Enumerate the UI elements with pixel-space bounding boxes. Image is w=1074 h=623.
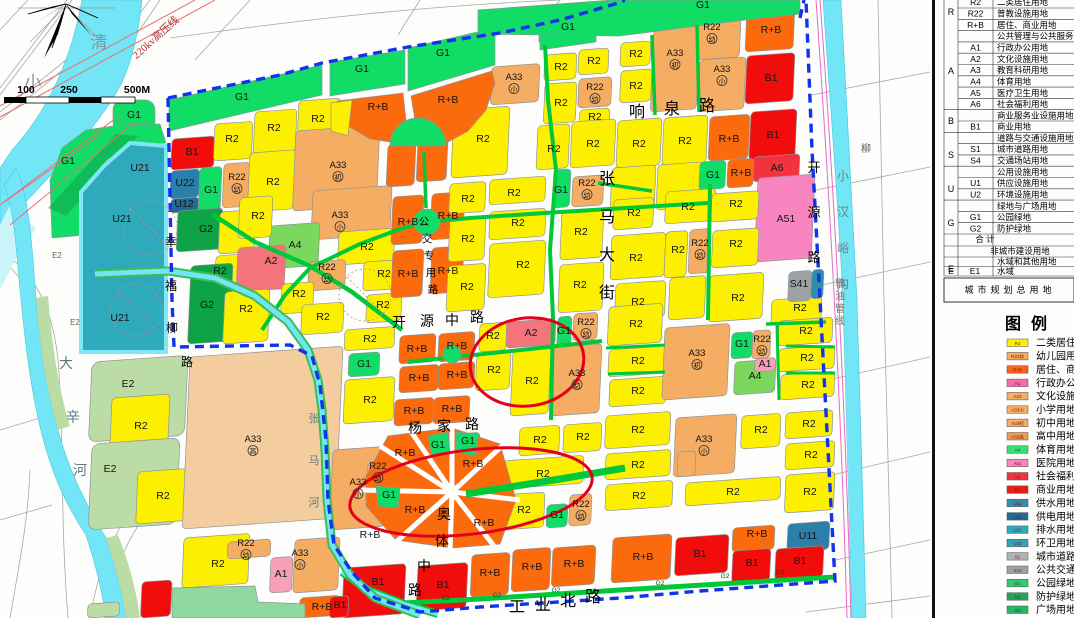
svg-text:工: 工 — [509, 599, 525, 616]
svg-text:公用设施用地: 公用设施用地 — [997, 167, 1049, 177]
svg-text:R2: R2 — [573, 279, 587, 291]
svg-text:初: 初 — [335, 173, 342, 182]
svg-text:R+B: R+B — [438, 94, 459, 106]
svg-text:环卫用地: 环卫用地 — [1036, 537, 1074, 550]
svg-text:R: R — [948, 7, 955, 17]
svg-text:R2: R2 — [671, 244, 685, 256]
svg-text:R2: R2 — [486, 330, 500, 342]
svg-text:A33: A33 — [330, 160, 347, 171]
svg-text:G1: G1 — [561, 21, 575, 33]
svg-text:G1: G1 — [382, 489, 396, 501]
svg-text:柳: 柳 — [166, 321, 178, 335]
svg-text:R+B: R+B — [368, 101, 389, 113]
svg-text:R2: R2 — [213, 265, 227, 277]
svg-text:线: 线 — [835, 315, 845, 328]
svg-text:开: 开 — [392, 316, 406, 331]
svg-text:G2: G2 — [721, 573, 730, 580]
svg-text:R22幼: R22幼 — [1011, 353, 1024, 360]
svg-text:R2: R2 — [631, 424, 645, 436]
svg-text:医院用地: 医院用地 — [1036, 456, 1074, 469]
svg-text:R2: R2 — [316, 311, 330, 323]
svg-text:G2: G2 — [1014, 595, 1021, 600]
svg-text:G1: G1 — [436, 47, 450, 59]
svg-text:输: 输 — [835, 277, 845, 290]
svg-text:R22: R22 — [703, 22, 720, 33]
svg-text:E2: E2 — [104, 463, 117, 475]
svg-text:幼: 幼 — [574, 381, 581, 390]
svg-text:公: 公 — [419, 216, 430, 228]
svg-text:U: U — [948, 184, 955, 194]
svg-text:R+B: R+B — [719, 133, 740, 145]
svg-text:G1: G1 — [431, 439, 445, 451]
svg-text:管: 管 — [835, 302, 845, 315]
svg-text:水域和其他用地: 水域和其他用地 — [997, 257, 1057, 267]
svg-text:小学用地: 小学用地 — [1036, 403, 1074, 416]
svg-text:R2: R2 — [629, 80, 643, 92]
svg-text:医疗卫生用地: 医疗卫生用地 — [997, 88, 1049, 98]
svg-text:E2: E2 — [70, 318, 80, 327]
svg-text:S41: S41 — [790, 278, 809, 290]
svg-text:幼: 幼 — [234, 185, 241, 194]
svg-text:R2: R2 — [588, 111, 602, 123]
svg-text:500M: 500M — [124, 84, 151, 96]
svg-text:R2: R2 — [311, 113, 325, 125]
svg-text:体育用地: 体育用地 — [997, 77, 1032, 87]
svg-text:普教设施用地: 普教设施用地 — [997, 9, 1049, 19]
svg-text:路: 路 — [470, 310, 484, 326]
svg-text:路: 路 — [585, 588, 601, 606]
svg-text:A33初: A33初 — [1011, 420, 1024, 427]
svg-text:A6: A6 — [1015, 474, 1021, 479]
svg-text:G1: G1 — [550, 509, 564, 521]
svg-text:二类居住用地: 二类居住用地 — [997, 0, 1049, 7]
svg-text:R2: R2 — [460, 281, 474, 293]
svg-text:城市规划总用地: 城市规划总用地 — [964, 284, 1055, 295]
svg-text:福: 福 — [165, 278, 177, 293]
svg-text:R2: R2 — [1015, 341, 1021, 346]
svg-text:A33: A33 — [245, 434, 262, 445]
svg-text:业: 业 — [535, 596, 551, 614]
svg-text:社会福利用地: 社会福利用地 — [1036, 470, 1074, 483]
svg-text:R2: R2 — [377, 268, 391, 280]
svg-text:R2: R2 — [970, 0, 981, 7]
svg-text:U21: U21 — [1013, 528, 1022, 533]
svg-text:B1: B1 — [186, 146, 199, 158]
svg-text:R2: R2 — [754, 424, 768, 436]
svg-text:G1: G1 — [706, 169, 720, 181]
svg-text:R2: R2 — [363, 333, 377, 345]
svg-text:文化设施用地: 文化设施用地 — [1036, 390, 1074, 403]
svg-text:路: 路 — [181, 354, 193, 369]
svg-text:R+B: R+B — [438, 210, 459, 222]
svg-text:专: 专 — [424, 249, 435, 262]
svg-text:公共管理与公共服务设施用地: 公共管理与公共服务设施用地 — [997, 31, 1074, 41]
svg-text:清: 清 — [91, 33, 108, 52]
svg-text:河: 河 — [73, 463, 87, 479]
svg-text:R2: R2 — [629, 48, 643, 60]
svg-text:幼: 幼 — [592, 95, 599, 104]
svg-text:防护绿地: 防护绿地 — [997, 223, 1032, 233]
svg-text:G2: G2 — [200, 299, 214, 311]
svg-text:R2: R2 — [266, 176, 280, 188]
svg-text:R+B: R+B — [633, 551, 654, 563]
svg-text:250: 250 — [60, 84, 78, 96]
svg-text:A6: A6 — [771, 162, 784, 174]
svg-text:A33: A33 — [667, 48, 684, 59]
svg-text:R22: R22 — [318, 262, 335, 273]
svg-text:A33: A33 — [506, 72, 523, 83]
svg-text:B1: B1 — [970, 122, 981, 132]
svg-text:A4: A4 — [289, 239, 302, 251]
svg-text:G1: G1 — [355, 63, 369, 75]
svg-text:R2: R2 — [267, 122, 281, 134]
svg-text:R22: R22 — [968, 9, 984, 19]
svg-text:U11: U11 — [1014, 501, 1022, 506]
svg-text:100: 100 — [17, 84, 35, 96]
svg-text:B1: B1 — [437, 579, 450, 591]
svg-text:张: 张 — [309, 412, 320, 425]
svg-text:B1: B1 — [794, 555, 807, 567]
svg-text:街: 街 — [599, 284, 615, 302]
svg-text:A33: A33 — [696, 434, 713, 445]
svg-text:R2: R2 — [487, 364, 501, 376]
svg-text:E2: E2 — [122, 378, 135, 390]
svg-text:A1: A1 — [759, 358, 772, 370]
svg-text:A33: A33 — [714, 64, 731, 75]
svg-text:G1: G1 — [61, 155, 75, 167]
svg-text:R+B: R+B — [395, 447, 416, 459]
svg-text:R2: R2 — [804, 449, 818, 461]
svg-text:小: 小 — [837, 169, 849, 183]
svg-text:R2: R2 — [629, 252, 643, 264]
svg-text:U2: U2 — [970, 190, 981, 200]
svg-text:A51: A51 — [777, 213, 796, 225]
svg-text:R2: R2 — [678, 135, 692, 147]
svg-text:源: 源 — [420, 314, 434, 330]
svg-text:源: 源 — [807, 205, 820, 220]
svg-text:响: 响 — [629, 103, 645, 121]
svg-text:R2: R2 — [574, 226, 588, 238]
svg-text:A51: A51 — [1013, 461, 1022, 466]
svg-text:用: 用 — [426, 268, 437, 279]
svg-text:U21: U21 — [130, 162, 149, 174]
svg-text:中: 中 — [417, 559, 431, 575]
svg-text:R2: R2 — [554, 61, 568, 73]
svg-text:U21: U21 — [112, 213, 131, 225]
svg-text:北: 北 — [560, 592, 576, 610]
svg-text:E1: E1 — [970, 266, 981, 276]
svg-text:A1: A1 — [970, 43, 981, 53]
svg-text:A33: A33 — [569, 368, 586, 379]
svg-text:马: 马 — [599, 208, 615, 226]
svg-text:A33: A33 — [689, 348, 706, 359]
svg-text:水域: 水域 — [997, 266, 1015, 276]
svg-text:R2: R2 — [225, 133, 239, 145]
svg-text:商业用地: 商业用地 — [997, 122, 1032, 132]
svg-text:R2: R2 — [629, 318, 643, 330]
svg-text:城市道路用地: 城市道路用地 — [997, 144, 1049, 154]
svg-text:R22: R22 — [586, 82, 603, 93]
svg-text:G1: G1 — [554, 184, 568, 196]
svg-text:公共交通设施用地: 公共交通设施用地 — [1036, 563, 1074, 576]
svg-text:R+B: R+B — [405, 504, 426, 516]
svg-text:油: 油 — [835, 290, 845, 303]
svg-text:E2: E2 — [52, 251, 62, 260]
svg-text:G1: G1 — [235, 91, 249, 103]
svg-text:S4: S4 — [970, 156, 981, 166]
svg-text:R2: R2 — [516, 259, 530, 271]
svg-text:R2: R2 — [726, 486, 740, 498]
svg-text:合 计: 合 计 — [975, 234, 995, 244]
svg-text:R+B: R+B — [1013, 368, 1022, 373]
svg-text:R+B: R+B — [398, 216, 419, 228]
svg-text:A33: A33 — [332, 210, 349, 221]
svg-text:路: 路 — [699, 97, 715, 115]
svg-text:S1: S1 — [1015, 554, 1021, 559]
svg-text:A4: A4 — [1015, 448, 1021, 453]
svg-text:R+B: R+B — [463, 458, 484, 470]
svg-text:A22: A22 — [1013, 394, 1022, 399]
svg-text:R2: R2 — [363, 394, 377, 406]
svg-text:R22: R22 — [753, 334, 770, 345]
svg-text:B1: B1 — [765, 72, 778, 84]
svg-text:A: A — [948, 66, 954, 76]
svg-text:U22: U22 — [175, 177, 194, 189]
svg-text:广场用地: 广场用地 — [1036, 603, 1074, 616]
svg-text:R2: R2 — [631, 355, 645, 367]
svg-text:幼: 幼 — [584, 191, 591, 200]
svg-text:汉: 汉 — [837, 205, 849, 219]
svg-text:R+B: R+B — [731, 167, 752, 179]
svg-text:小: 小 — [719, 77, 726, 86]
svg-text:R+B: R+B — [447, 369, 468, 381]
svg-text:公园绿地: 公园绿地 — [997, 212, 1032, 222]
svg-text:G1: G1 — [1014, 581, 1021, 586]
svg-text:G1: G1 — [461, 435, 475, 447]
svg-text:R2: R2 — [517, 504, 531, 516]
svg-text:幼儿园用地: 幼儿园用地 — [1036, 350, 1074, 363]
svg-text:R2: R2 — [800, 352, 814, 364]
svg-text:R2: R2 — [631, 296, 645, 308]
svg-text:文化设施用地: 文化设施用地 — [997, 54, 1049, 64]
svg-text:A5: A5 — [970, 88, 981, 98]
svg-text:G2: G2 — [493, 592, 502, 599]
svg-text:奥: 奥 — [437, 506, 451, 523]
svg-text:R2: R2 — [525, 375, 539, 387]
svg-text:行政办公用地: 行政办公用地 — [997, 43, 1049, 53]
svg-text:商业服务业设施用地: 商业服务业设施用地 — [997, 110, 1074, 120]
svg-text:G1: G1 — [204, 184, 218, 196]
svg-text:A33: A33 — [292, 548, 309, 559]
svg-text:A1: A1 — [275, 568, 288, 580]
svg-text:辛: 辛 — [66, 410, 80, 426]
svg-text:A2: A2 — [525, 327, 538, 339]
svg-text:R2: R2 — [554, 97, 568, 109]
svg-text:E: E — [948, 264, 954, 274]
svg-text:U22: U22 — [1013, 541, 1022, 546]
svg-text:R2: R2 — [802, 418, 816, 430]
svg-text:R+B: R+B — [564, 558, 585, 570]
svg-text:R+B: R+B — [409, 372, 430, 384]
svg-text:A33高: A33高 — [1011, 433, 1024, 440]
svg-text:R+B: R+B — [761, 24, 782, 36]
svg-text:小: 小 — [355, 490, 362, 499]
svg-text:路: 路 — [408, 583, 422, 599]
svg-text:排水用地: 排水用地 — [1036, 523, 1074, 536]
svg-text:图例: 图例 — [1005, 314, 1057, 333]
svg-text:A33: A33 — [350, 477, 367, 488]
svg-text:R+B: R+B — [360, 529, 381, 541]
svg-text:R2: R2 — [586, 138, 600, 150]
svg-text:幸: 幸 — [165, 235, 177, 249]
svg-text:行政办公用地: 行政办公用地 — [1036, 376, 1074, 389]
svg-text:R+B: R+B — [407, 343, 428, 355]
svg-text:供电用地: 供电用地 — [1036, 510, 1074, 523]
svg-text:R+B: R+B — [398, 268, 419, 280]
svg-text:U1: U1 — [970, 178, 981, 188]
svg-text:R2: R2 — [536, 468, 550, 480]
svg-text:B1: B1 — [334, 599, 347, 611]
svg-text:高中用地: 高中用地 — [1036, 430, 1074, 443]
svg-text:幼: 幼 — [578, 512, 585, 521]
svg-text:R2: R2 — [799, 325, 813, 337]
svg-text:B1: B1 — [767, 129, 780, 141]
svg-text:R2: R2 — [627, 207, 641, 219]
svg-text:幼: 幼 — [583, 330, 590, 339]
svg-text:张: 张 — [599, 170, 615, 188]
svg-text:小: 小 — [337, 223, 344, 232]
svg-text:小: 小 — [511, 85, 518, 94]
svg-text:R2: R2 — [292, 288, 306, 300]
svg-text:开: 开 — [807, 160, 820, 175]
svg-text:R2: R2 — [576, 431, 590, 443]
svg-text:S1: S1 — [970, 144, 981, 154]
svg-text:幼: 幼 — [324, 275, 331, 284]
svg-text:路: 路 — [428, 283, 439, 296]
svg-text:B1: B1 — [372, 576, 385, 588]
svg-text:A4: A4 — [970, 77, 981, 87]
svg-text:R22: R22 — [572, 499, 589, 510]
svg-text:中: 中 — [445, 313, 459, 329]
svg-text:R2: R2 — [511, 217, 525, 229]
svg-text:R2: R2 — [156, 490, 170, 502]
svg-text:城市道路用地: 城市道路用地 — [1036, 550, 1074, 563]
svg-text:G2: G2 — [552, 587, 561, 594]
svg-text:R+B: R+B — [447, 340, 468, 352]
svg-text:R2: R2 — [632, 490, 646, 502]
svg-text:道路与交通设施用地: 道路与交通设施用地 — [997, 133, 1074, 143]
svg-text:R2: R2 — [461, 233, 475, 245]
svg-text:R2: R2 — [793, 302, 807, 314]
svg-text:R2: R2 — [533, 434, 547, 446]
svg-text:R2: R2 — [587, 55, 601, 67]
svg-text:杨: 杨 — [408, 421, 422, 437]
svg-text:马: 马 — [309, 454, 320, 467]
svg-text:G3: G3 — [1014, 608, 1021, 613]
svg-text:A2: A2 — [265, 255, 278, 267]
svg-text:居住、商业用地: 居住、商业用地 — [1036, 363, 1074, 376]
svg-text:B1: B1 — [1015, 488, 1021, 493]
svg-text:绿地与广场用地: 绿地与广场用地 — [997, 201, 1057, 211]
svg-text:小: 小 — [297, 561, 304, 570]
svg-text:B: B — [948, 116, 954, 126]
svg-text:U11: U11 — [799, 530, 818, 542]
svg-text:G: G — [947, 218, 954, 228]
svg-text:G1: G1 — [127, 109, 141, 121]
svg-text:R2: R2 — [729, 238, 743, 250]
svg-text:A33小: A33小 — [1011, 407, 1024, 414]
svg-text:初: 初 — [672, 61, 679, 70]
svg-text:大: 大 — [599, 246, 615, 264]
svg-text:R+B: R+B — [312, 601, 333, 613]
svg-text:R2: R2 — [360, 241, 374, 253]
svg-text:U12: U12 — [1013, 514, 1022, 519]
svg-text:R2: R2 — [376, 299, 390, 311]
svg-text:R22: R22 — [578, 178, 595, 189]
svg-text:R+B: R+B — [480, 567, 501, 579]
svg-text:交: 交 — [422, 232, 433, 245]
svg-text:B1: B1 — [694, 548, 707, 560]
svg-text:体: 体 — [435, 534, 449, 550]
svg-text:R2: R2 — [476, 133, 490, 145]
svg-text:商业用地: 商业用地 — [1036, 483, 1074, 496]
svg-text:U12: U12 — [174, 198, 193, 210]
svg-text:R+B: R+B — [438, 265, 459, 277]
svg-text:G2: G2 — [656, 580, 665, 587]
svg-text:R2: R2 — [631, 459, 645, 471]
svg-text:R2: R2 — [681, 201, 695, 213]
svg-text:R+B: R+B — [474, 517, 495, 529]
svg-text:幼: 幼 — [697, 251, 704, 260]
svg-text:交通场站用地: 交通场站用地 — [997, 156, 1049, 166]
svg-text:路: 路 — [465, 417, 479, 433]
svg-text:高: 高 — [250, 447, 257, 456]
svg-text:R2: R2 — [251, 210, 265, 222]
svg-text:R+B: R+B — [967, 20, 984, 30]
svg-text:R22: R22 — [369, 461, 386, 472]
svg-text:G1: G1 — [557, 325, 571, 337]
svg-text:B1: B1 — [746, 557, 759, 569]
svg-text:大: 大 — [59, 356, 73, 372]
svg-text:R2: R2 — [631, 385, 645, 397]
svg-text:社会福利用地: 社会福利用地 — [997, 99, 1049, 109]
svg-text:A2: A2 — [970, 54, 981, 64]
svg-text:G2: G2 — [199, 223, 213, 235]
svg-text:S41: S41 — [1013, 568, 1022, 573]
svg-text:R2: R2 — [211, 558, 225, 570]
svg-text:初中用地: 初中用地 — [1036, 416, 1074, 429]
svg-text:峪: 峪 — [837, 241, 849, 255]
svg-text:二类居住用地: 二类居住用地 — [1036, 336, 1074, 349]
svg-text:环境设施用地: 环境设施用地 — [997, 190, 1049, 200]
svg-text:R+B: R+B — [442, 403, 463, 415]
svg-text:R+B: R+B — [522, 561, 543, 573]
svg-text:体育用地: 体育用地 — [1036, 443, 1074, 456]
svg-text:泉: 泉 — [664, 100, 680, 118]
svg-text:A1: A1 — [1015, 381, 1021, 386]
svg-text:G1: G1 — [970, 212, 982, 222]
svg-text:R2: R2 — [461, 193, 475, 205]
svg-text:R22: R22 — [228, 172, 245, 183]
svg-text:居住、商业用地: 居住、商业用地 — [997, 20, 1057, 30]
svg-text:R2: R2 — [507, 187, 521, 199]
svg-text:G2: G2 — [442, 595, 451, 602]
svg-text:小: 小 — [701, 447, 708, 456]
svg-text:R2: R2 — [239, 303, 253, 315]
svg-text:A4: A4 — [749, 370, 762, 382]
svg-text:G2: G2 — [970, 223, 982, 233]
svg-text:R22: R22 — [237, 538, 254, 549]
